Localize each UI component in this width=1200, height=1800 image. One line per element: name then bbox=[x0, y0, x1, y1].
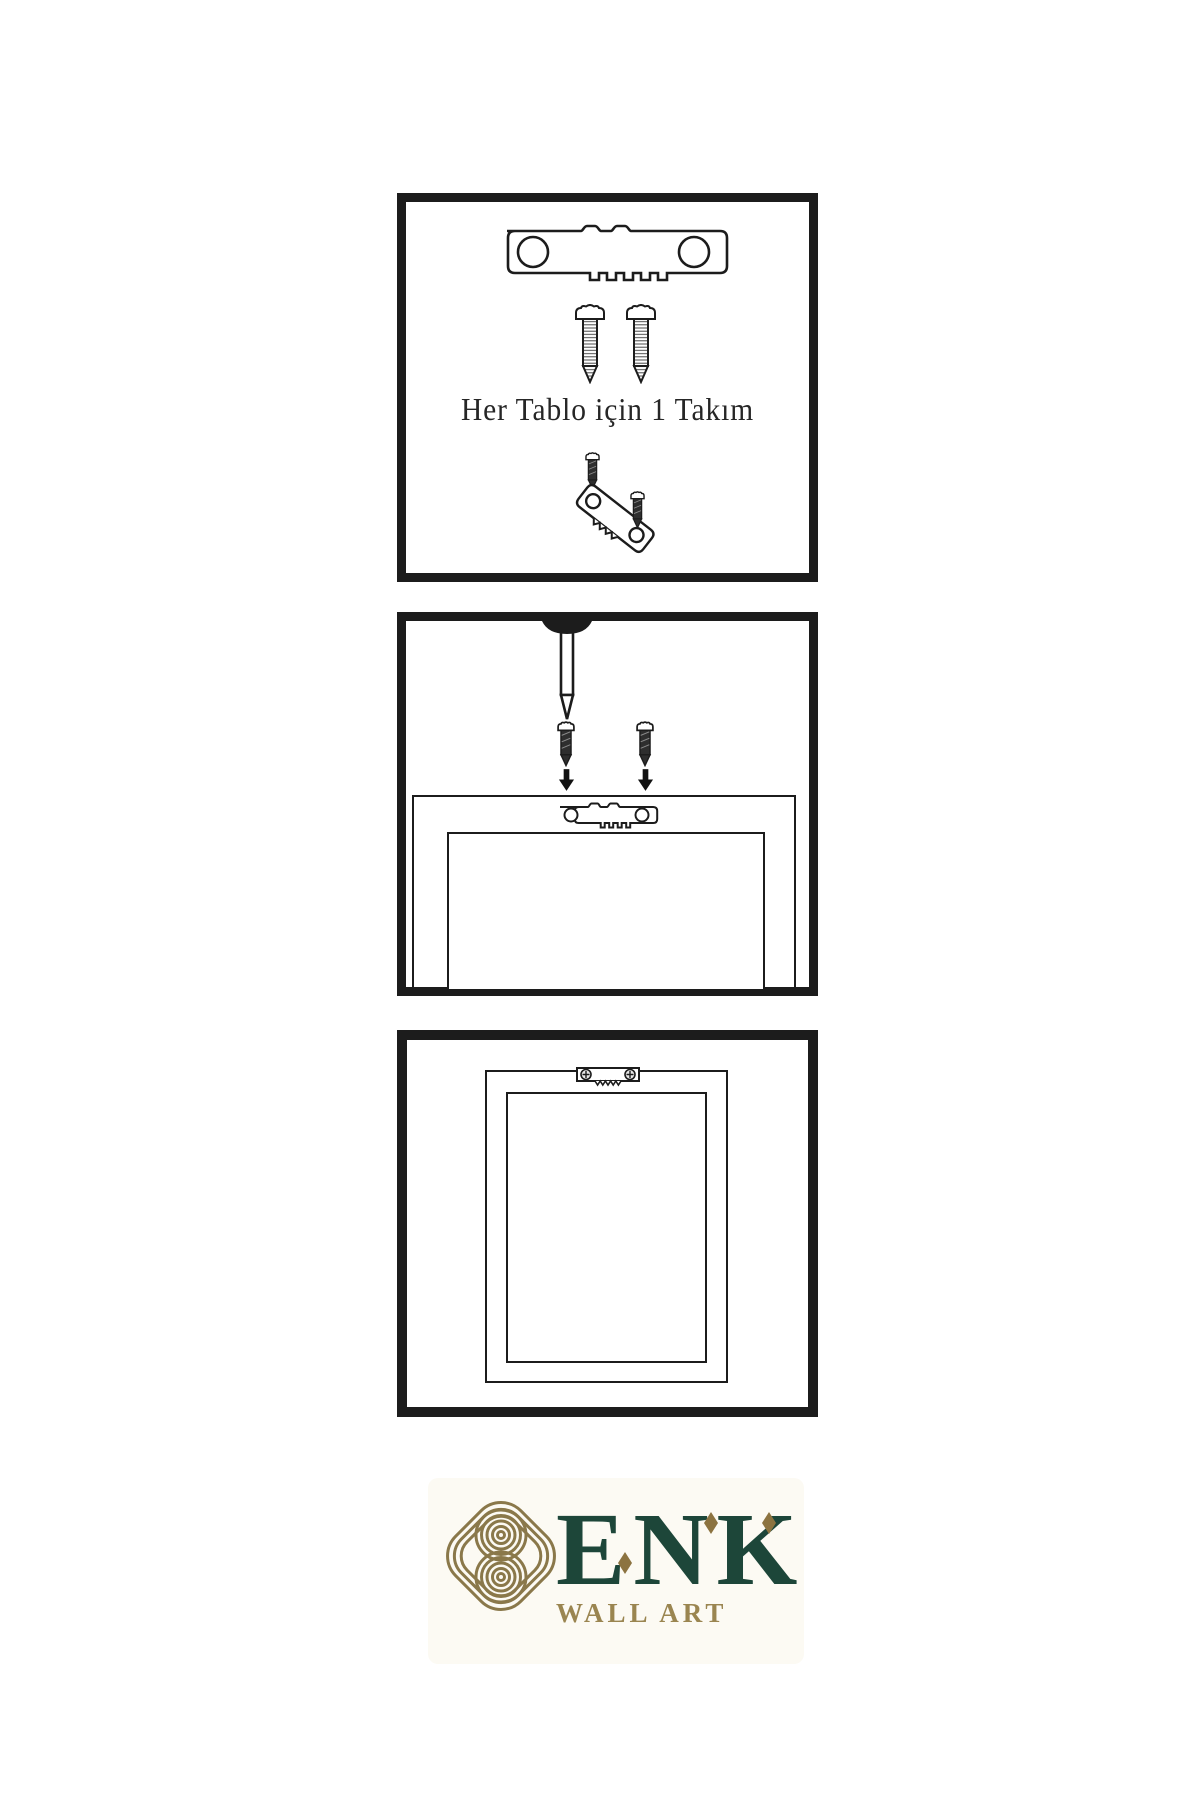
sawtooth-hanger-icon bbox=[497, 223, 730, 283]
panel-mounting-steps bbox=[397, 612, 818, 996]
sawtooth-hanger-icon bbox=[554, 801, 659, 831]
nail-icon bbox=[540, 621, 594, 723]
dark-screw-icon bbox=[555, 721, 577, 767]
down-arrow-icon bbox=[558, 769, 575, 792]
frame-back-panel bbox=[447, 832, 765, 989]
panel-hanging-result bbox=[397, 1030, 818, 1417]
down-arrow-icon bbox=[637, 769, 654, 792]
kit-caption: Her Tablo için 1 Takım bbox=[422, 391, 793, 428]
knot-icon bbox=[446, 1488, 556, 1624]
brand-name: ENK bbox=[556, 1502, 804, 1598]
brand-logo: ENK WALL ART bbox=[428, 1478, 804, 1664]
sawtooth-hanger-icon bbox=[575, 1066, 641, 1088]
panel-hardware-kit: Her Tablo için 1 Takım bbox=[397, 193, 818, 582]
dark-screw-icon bbox=[627, 491, 648, 529]
instruction-sheet: { "page": { "background": "#ffffff" }, "… bbox=[0, 0, 1200, 1800]
hanging-frame-mat bbox=[506, 1092, 707, 1363]
brand-name-text: ENK bbox=[556, 1492, 805, 1607]
hanging-frame-front-view bbox=[485, 1070, 728, 1383]
screw-icon bbox=[623, 304, 659, 384]
screw-icon bbox=[572, 304, 608, 384]
dark-screw-icon bbox=[634, 721, 656, 767]
brand-tagline: WALL ART bbox=[556, 1598, 776, 1629]
